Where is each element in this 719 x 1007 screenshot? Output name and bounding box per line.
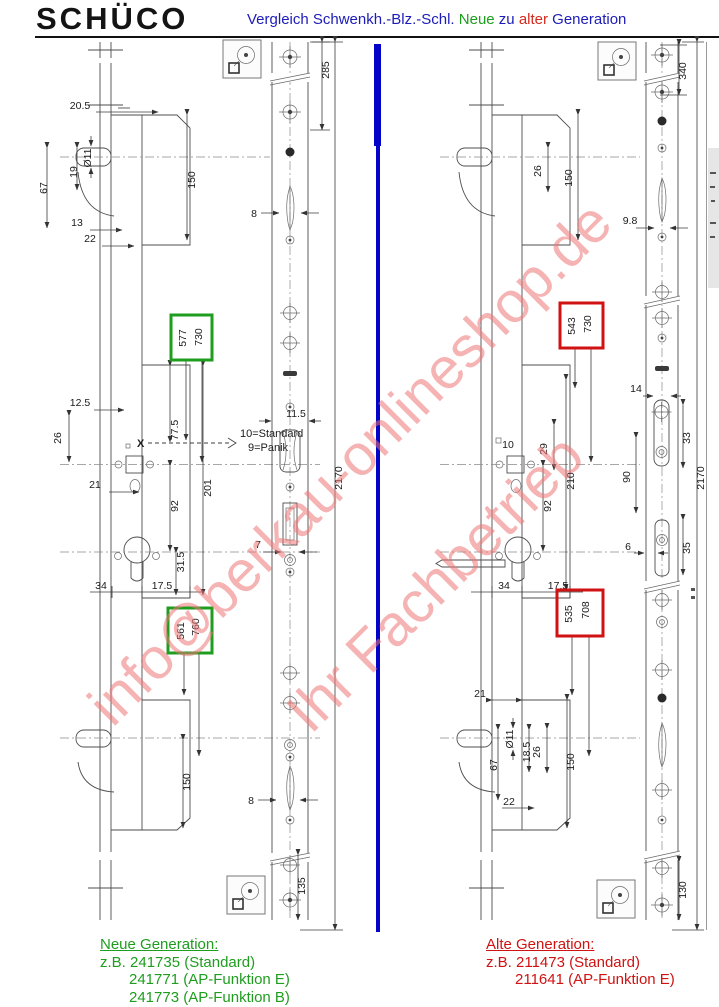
dim-label: 26 [531, 746, 543, 758]
dim-label: 8 [251, 208, 257, 220]
right-highlight-box-2: 535 708 [557, 590, 603, 636]
dim-label: 135 [296, 877, 308, 895]
cam-icon [227, 876, 265, 914]
dim-label: 67 [38, 182, 50, 194]
dim-label: 150 [565, 753, 577, 771]
dim-label: 34 [95, 580, 107, 592]
dim-label: 26 [532, 165, 544, 177]
dim-label: 150 [186, 171, 198, 189]
right-hook-bolt-bottom [457, 730, 492, 747]
divider-line [374, 44, 381, 146]
dim-label: Ø11 [504, 729, 516, 748]
dim-label: 8 [248, 795, 254, 807]
dim-label: 14 [630, 383, 642, 395]
dim-label: 29 [538, 443, 550, 455]
highlight-value: 730 [582, 315, 594, 333]
right-lock-case [436, 115, 640, 830]
right-dimension-labels: 26 150 9.8 14 10 29 210 92 34 17.5 21 Ø1… [474, 165, 642, 808]
caption-old-line2: 211641 (AP-Funktion E) [486, 971, 675, 989]
cam-icon [223, 40, 261, 78]
dim-label: Ø11 [82, 148, 94, 167]
dim-label: 285 [320, 61, 332, 79]
right-drawing: 26 150 9.8 14 10 29 210 92 34 17.5 21 Ø1… [436, 42, 719, 930]
technical-drawing: X 10=Standard 9=Panik [0, 0, 719, 1007]
right-cylinder-hole [496, 537, 541, 581]
dim-label: 11.5 [286, 408, 306, 420]
dim-label: 130 [677, 881, 689, 899]
left-lock-case [60, 115, 320, 830]
right-faceplate: 340 33 90 35 6 130 2170 [621, 42, 707, 930]
panik-note: 9=Panik [248, 442, 289, 454]
dim-label: 9.8 [623, 215, 638, 227]
highlight-value: 561 [175, 622, 187, 640]
highlight-value: 730 [193, 328, 205, 346]
left-highlight-box-1: 577 730 [171, 315, 212, 360]
left-faceplate: 285 8 11.5 7 8 135 2170 [248, 42, 345, 930]
dim-label: 92 [169, 500, 181, 512]
dim-label: 12.5 [70, 397, 91, 409]
caption-new-heading: Neue Generation: [100, 936, 290, 954]
left-x-annotation: X 10=Standard 9=Panik [137, 428, 303, 454]
highlight-value: 577 [177, 329, 189, 347]
caption-old-generation: Alte Generation: z.B. 211473 (Standard) … [486, 936, 675, 989]
caption-new-line3: 241773 (AP-Funktion B) [100, 989, 290, 1007]
highlight-value: 535 [563, 605, 575, 623]
highlight-value: 543 [566, 317, 578, 335]
dim-label: 21 [89, 479, 101, 491]
dim-label: 19 [68, 166, 80, 178]
dim-label: 33 [681, 432, 693, 444]
caption-new-generation: Neue Generation: z.B. 241735 (Standard) … [100, 936, 290, 1006]
dim-label: 210 [565, 472, 577, 490]
caption-new-line2: 241771 (AP-Funktion E) [100, 971, 290, 989]
dim-label: 13 [71, 217, 83, 229]
dim-label: 340 [677, 62, 689, 80]
dim-label: 35 [681, 542, 693, 554]
dim-label: 77.5 [169, 420, 181, 441]
x-marker: X [137, 438, 145, 450]
dim-label: 26 [52, 432, 64, 444]
caption-new-line1: z.B. 241735 (Standard) [100, 954, 290, 972]
dim-label: 201 [202, 479, 214, 497]
dim-label: 92 [542, 500, 554, 512]
dim-label: 20.5 [70, 100, 91, 112]
cam-icon [597, 880, 635, 918]
dim-label: 6 [625, 541, 631, 553]
cam-icon [598, 42, 636, 80]
right-bolt-rod [436, 560, 505, 567]
dim-label: 150 [563, 169, 575, 187]
page: SCHÜCO Vergleich Schwenkh.-Blz.-Schl. Ne… [0, 0, 719, 1007]
dim-label: 67 [488, 759, 500, 771]
highlight-value: 708 [580, 601, 592, 619]
dim-label: 22 [84, 233, 96, 245]
dim-label: 17.5 [152, 580, 173, 592]
schueco-stamp [283, 371, 297, 376]
divider-line [376, 146, 381, 932]
dim-label: 150 [181, 773, 193, 791]
left-highlight-box-2: 561 760 [168, 608, 212, 653]
left-hook-bolt-bottom [76, 730, 111, 747]
dim-label: 7 [255, 539, 261, 551]
highlight-value: 760 [190, 618, 202, 636]
right-dimension-lines [471, 115, 688, 828]
dim-label: 2170 [695, 466, 707, 490]
dim-label: 31.5 [175, 552, 187, 573]
caption-old-line1: z.B. 211473 (Standard) [486, 954, 675, 972]
left-cylinder-hole [115, 537, 160, 581]
right-highlight-box-1: 543 730 [560, 303, 603, 348]
dim-label: 10 [502, 439, 514, 451]
dim-label: 90 [621, 471, 633, 483]
right-rail [469, 42, 504, 920]
dim-label: 22 [503, 796, 515, 808]
edge-text-fragment [691, 148, 719, 599]
left-drawing: X 10=Standard 9=Panik [38, 40, 345, 930]
caption-old-heading: Alte Generation: [486, 936, 675, 954]
dim-label: 2170 [333, 466, 345, 490]
dim-label: 34 [498, 580, 510, 592]
schueco-stamp [655, 366, 669, 371]
dim-label: 21 [474, 688, 486, 700]
